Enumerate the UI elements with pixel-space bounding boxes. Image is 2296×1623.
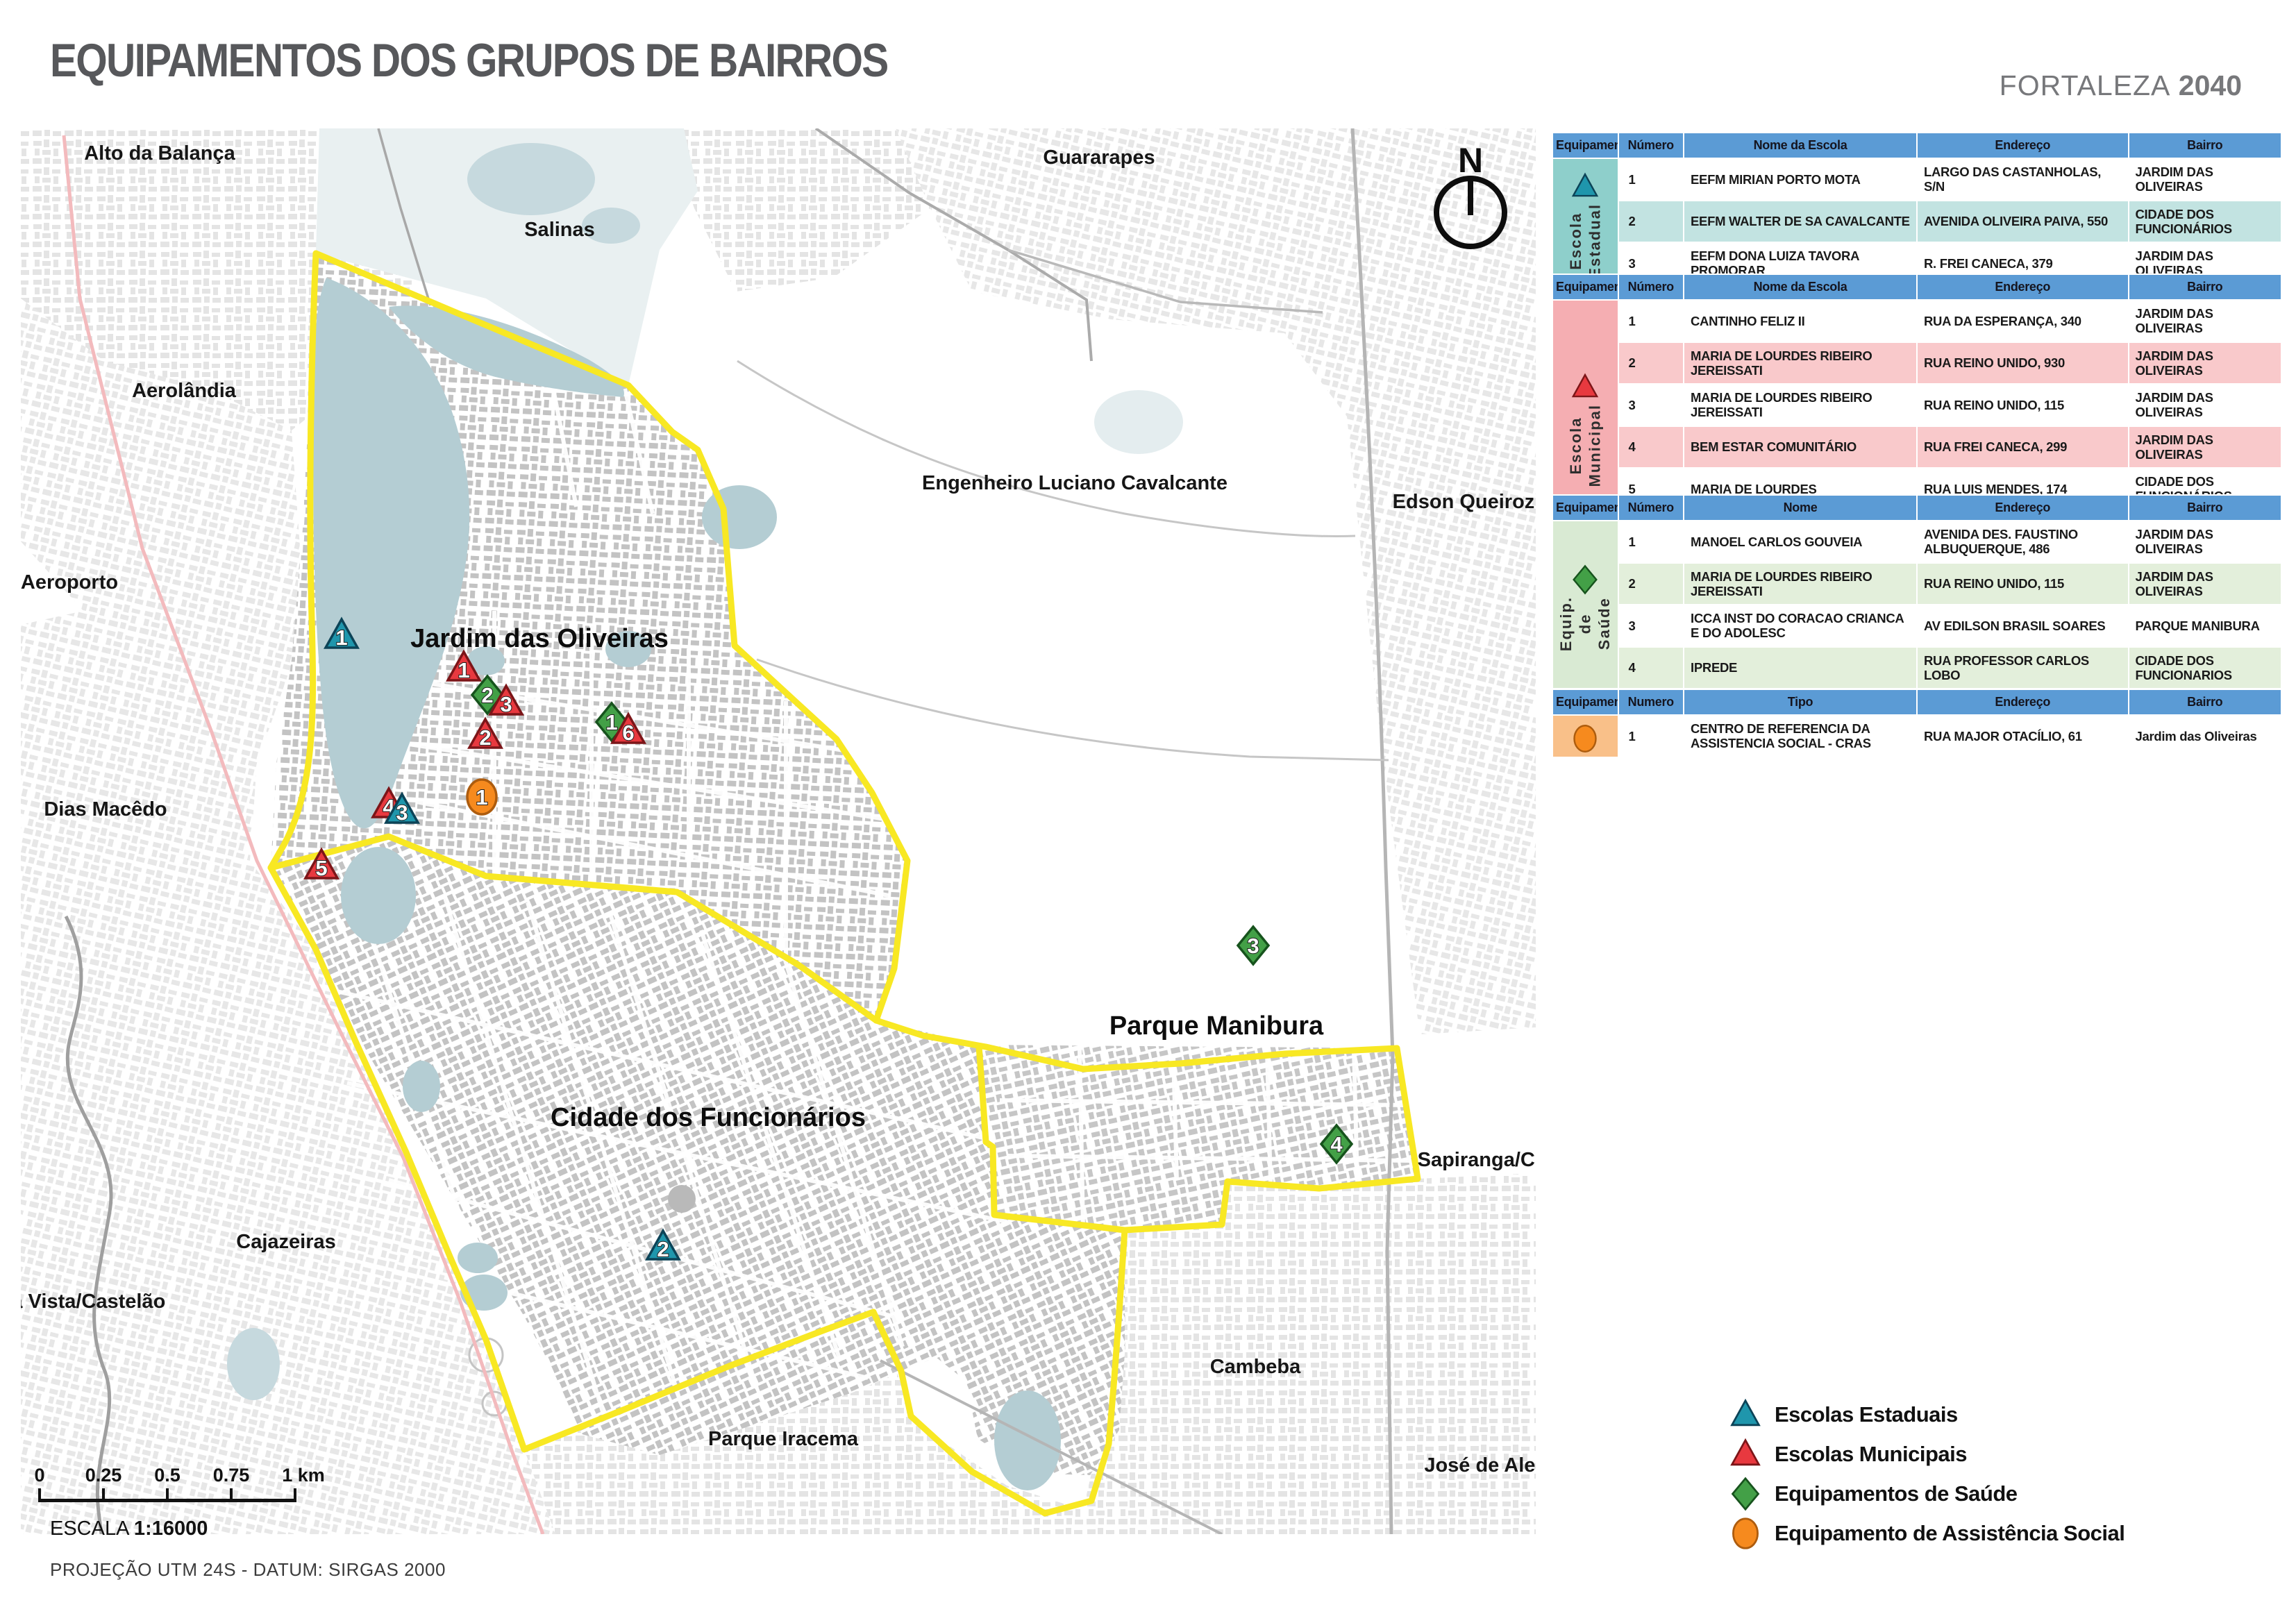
bairro-label: Aeroporto: [21, 571, 118, 594]
cell-nome: BEM ESTAR COMUNITÁRIO: [1684, 426, 1917, 469]
table-saude-grid: EquipamentoNúmeroNomeEndereçoBairroEquip…: [1552, 494, 2282, 689]
bairro-label: Guararapes: [1043, 146, 1155, 169]
cell-endereco: LARGO DAS CASTANHOLAS, S/N: [1917, 158, 2129, 201]
column-header: Endereço: [1917, 274, 2129, 300]
column-header: Numero: [1618, 689, 1684, 715]
cell-numero: 1: [1618, 158, 1684, 201]
cell-numero: 3: [1618, 384, 1684, 426]
cell-nome: MARIA DE LOURDES RIBEIRO JEREISSATI: [1684, 563, 1917, 605]
cell-bairro: Jardim das Oliveiras: [2129, 715, 2282, 757]
scale-bar-labels: 00.250.50.751 km: [38, 1465, 296, 1487]
bairro-label: Cambeba: [1210, 1356, 1301, 1378]
column-header: Endereço: [1917, 689, 2129, 715]
table-row: 1CENTRO DE REFERENCIA DA ASSISTENCIA SOC…: [1552, 715, 2281, 757]
scale-tick-label: 0.25: [85, 1465, 122, 1486]
column-header: Bairro: [2129, 133, 2282, 158]
page-title: EQUIPAMENTOS DOS GRUPOS DE BAIRROS: [50, 33, 888, 87]
table-row: 3ICCA INST DO CORACAO CRIANCA E DO ADOLE…: [1552, 605, 2281, 647]
legend-item-cras: Equipamento de Assistência Social: [1727, 1518, 2125, 1549]
cell-nome: CANTINHO FELIZ II: [1684, 300, 1917, 342]
legend-item-estadual: Escolas Estaduais: [1727, 1399, 2125, 1430]
cell-bairro: JARDIM DAS OLIVEIRAS: [2129, 342, 2282, 385]
group-label: Equip. deSaúde: [1557, 596, 1614, 651]
column-header: Endereço: [1917, 495, 2129, 521]
marker-number: 1: [335, 625, 347, 650]
bairro-label: Parque Iracema: [708, 1428, 859, 1450]
cell-numero: 3: [1618, 605, 1684, 647]
bairro-label: Alto da Balança: [84, 142, 235, 165]
marker-number: 6: [622, 721, 634, 745]
scale-text: ESCALA 1:16000: [50, 1517, 208, 1540]
map-canvas: Alto da BalançaSalinasGuararapesAerolând…: [21, 128, 1536, 1534]
marker-number: 2: [657, 1237, 669, 1261]
brand-year: 2040: [2179, 69, 2242, 101]
cell-bairro: JARDIM DAS OLIVEIRAS: [2129, 563, 2282, 605]
cell-nome: EEFM WALTER DE SA CAVALCANTE: [1684, 201, 1917, 243]
scale-bar: 00.250.50.751 km: [38, 1465, 296, 1508]
bairro-label: Aerolândia: [132, 380, 237, 402]
column-header: Endereço: [1917, 133, 2129, 158]
cell-nome: CENTRO DE REFERENCIA DA ASSISTENCIA SOCI…: [1684, 715, 1917, 757]
table-row: EscolaMunicipal1CANTINHO FELIZ IIRUA DA …: [1552, 300, 2281, 342]
table-row: 2MARIA DE LOURDES RIBEIRO JEREISSATIRUA …: [1552, 563, 2281, 605]
column-header: Tipo: [1684, 689, 1917, 715]
column-header: Número: [1618, 133, 1684, 158]
cell-endereco: RUA REINO UNIDO, 115: [1917, 563, 2129, 605]
legend-label: Equipamento de Assistência Social: [1775, 1521, 2125, 1546]
marker-cras-1: 1: [467, 780, 496, 814]
bairro-label: Edson Queiroz: [1393, 491, 1535, 513]
estadual-symbol-icon: [1570, 171, 1600, 202]
group-cell: EscolaEstadual: [1552, 158, 1618, 285]
cell-numero: 2: [1618, 342, 1684, 385]
municipal-symbol-icon: [1570, 372, 1600, 403]
cell-endereco: RUA REINO UNIDO, 115: [1917, 384, 2129, 426]
column-header: Equipamentos: [1552, 689, 1618, 715]
cell-nome: MANOEL CARLOS GOUVEIA: [1684, 521, 1917, 563]
group-cell: [1552, 715, 1618, 757]
cell-bairro: CIDADE DOS FUNCIONÁRIOS: [2129, 201, 2282, 243]
legend-label: Equipamentos de Saúde: [1775, 1481, 2018, 1506]
cras-symbol-icon: [1728, 1516, 1763, 1551]
marker-number: 3: [500, 692, 512, 716]
column-header: Bairro: [2129, 495, 2282, 521]
cell-numero: 1: [1618, 715, 1684, 757]
column-header: Equipamento: [1552, 274, 1618, 300]
legend: Escolas EstaduaisEscolas MunicipaisEquip…: [1727, 1399, 2125, 1558]
cell-numero: 4: [1618, 647, 1684, 689]
cell-endereco: RUA MAJOR OTACÍLIO, 61: [1917, 715, 2129, 757]
bairro-label: Parque Manibura: [1109, 1011, 1324, 1041]
table-row: 3MARIA DE LOURDES RIBEIRO JEREISSATIRUA …: [1552, 384, 2281, 426]
bairro-label: Boa Vista/Castelão: [21, 1290, 165, 1313]
cell-nome: MARIA DE LOURDES RIBEIRO JEREISSATI: [1684, 342, 1917, 385]
bairro-label: Salinas: [524, 219, 595, 241]
legend-item-saude: Equipamentos de Saúde: [1727, 1479, 2125, 1509]
legend-label: Escolas Estaduais: [1775, 1402, 1958, 1427]
table-row: 4IPREDERUA PROFESSOR CARLOS LOBOCIDADE D…: [1552, 647, 2281, 689]
cell-nome: EEFM MIRIAN PORTO MOTA: [1684, 158, 1917, 201]
saude-symbol-icon: [1570, 564, 1600, 595]
municipal-symbol-icon: [1728, 1437, 1763, 1472]
column-header: Nome da Escola: [1684, 274, 1917, 300]
estadual-symbol-icon: [1728, 1397, 1763, 1432]
bairro-label: Sapiranga/Coité: [1418, 1149, 1536, 1171]
column-header: Nome da Escola: [1684, 133, 1917, 158]
marker-number: 1: [458, 658, 469, 682]
marker-number: 2: [479, 725, 491, 750]
cell-bairro: JARDIM DAS OLIVEIRAS: [2129, 384, 2282, 426]
projection-text: PROJEÇÃO UTM 24S - DATUM: SIRGAS 2000: [50, 1559, 446, 1581]
table-row: Equip. deSaúde1MANOEL CARLOS GOUVEIAAVEN…: [1552, 521, 2281, 563]
brand-name: FORTALEZA: [2000, 69, 2171, 101]
cell-nome: IPREDE: [1684, 647, 1917, 689]
column-header: Bairro: [2129, 689, 2282, 715]
table-row: EscolaEstadual1EEFM MIRIAN PORTO MOTALAR…: [1552, 158, 2281, 201]
cell-numero: 2: [1618, 201, 1684, 243]
scale-tick-label: 0.5: [154, 1465, 181, 1486]
bairro-label: José de Alencar: [1424, 1454, 1536, 1477]
cell-endereco: AVENIDA OLIVEIRA PAIVA, 550: [1917, 201, 2129, 243]
cell-numero: 1: [1618, 521, 1684, 563]
table-row: 4BEM ESTAR COMUNITÁRIORUA FREI CANECA, 2…: [1552, 426, 2281, 469]
cell-numero: 2: [1618, 563, 1684, 605]
bairro-label: Cidade dos Funcionários: [551, 1103, 866, 1132]
bairro-label: Dias Macêdo: [44, 798, 167, 821]
cras-symbol-icon: [1570, 723, 1600, 754]
column-header: Equipamento: [1552, 133, 1618, 158]
column-header: Número: [1618, 274, 1684, 300]
table-saude: EquipamentoNúmeroNomeEndereçoBairroEquip…: [1552, 494, 2282, 689]
cell-nome: MARIA DE LOURDES RIBEIRO JEREISSATI: [1684, 384, 1917, 426]
cell-bairro: JARDIM DAS OLIVEIRAS: [2129, 300, 2282, 342]
column-header: Equipamento: [1552, 495, 1618, 521]
marker-number: 2: [481, 683, 493, 707]
table-row: 2EEFM WALTER DE SA CAVALCANTEAVENIDA OLI…: [1552, 201, 2281, 243]
group-label: EscolaMunicipal: [1566, 404, 1604, 487]
marker-number: 4: [1330, 1132, 1343, 1157]
scale-text-value: 1:16000: [134, 1517, 208, 1540]
cell-numero: 1: [1618, 300, 1684, 342]
bairro-label: Engenheiro Luciano Cavalcante: [922, 472, 1227, 494]
cell-bairro: JARDIM DAS OLIVEIRAS: [2129, 521, 2282, 563]
cell-nome: ICCA INST DO CORACAO CRIANCA E DO ADOLES…: [1684, 605, 1917, 647]
marker-number: 1: [476, 785, 487, 809]
table-estadual-grid: EquipamentoNúmeroNome da EscolaEndereçoB…: [1552, 132, 2282, 285]
marker-number: 3: [1247, 934, 1259, 958]
cell-endereco: RUA FREI CANECA, 299: [1917, 426, 2129, 469]
column-header: Nome: [1684, 495, 1917, 521]
marker-number: 5: [315, 856, 327, 880]
marker-number: 3: [396, 800, 408, 825]
cell-endereco: RUA DA ESPERANÇA, 340: [1917, 300, 2129, 342]
table-row: 2MARIA DE LOURDES RIBEIRO JEREISSATIRUA …: [1552, 342, 2281, 385]
table-cras-grid: EquipamentosNumeroTipoEndereçoBairro1CEN…: [1552, 689, 2282, 758]
table-cras: EquipamentosNumeroTipoEndereçoBairro1CEN…: [1552, 689, 2282, 758]
cell-endereco: AV EDILSON BRASIL SOARES: [1917, 605, 2129, 647]
saude-symbol-icon: [1728, 1477, 1763, 1511]
scale-text-prefix: ESCALA: [50, 1517, 128, 1540]
group-cell: Equip. deSaúde: [1552, 521, 1618, 689]
cell-numero: 4: [1618, 426, 1684, 469]
marker-number: 1: [605, 710, 617, 734]
column-header: Bairro: [2129, 274, 2282, 300]
scale-bar-line: [38, 1487, 296, 1502]
scale-tick-label: 0.75: [213, 1465, 250, 1486]
cell-bairro: JARDIM DAS OLIVEIRAS: [2129, 426, 2282, 469]
group-label: EscolaEstadual: [1566, 203, 1604, 278]
cell-bairro: JARDIM DAS OLIVEIRAS: [2129, 158, 2282, 201]
bairro-label: Cajazeiras: [236, 1231, 336, 1253]
column-header: Número: [1618, 495, 1684, 521]
cell-endereco: RUA REINO UNIDO, 930: [1917, 342, 2129, 385]
bairro-label: Jardim das Oliveiras: [410, 624, 669, 653]
cell-endereco: RUA PROFESSOR CARLOS LOBO: [1917, 647, 2129, 689]
cell-endereco: AVENIDA DES. FAUSTINO ALBUQUERQUE, 486: [1917, 521, 2129, 563]
scale-tick-label: 0: [34, 1465, 44, 1486]
legend-item-municipal: Escolas Municipais: [1727, 1439, 2125, 1470]
legend-label: Escolas Municipais: [1775, 1442, 1967, 1467]
cell-bairro: CIDADE DOS FUNCIONARIOS: [2129, 647, 2282, 689]
north-label: N: [1458, 141, 1483, 180]
table-estadual: EquipamentoNúmeroNome da EscolaEndereçoB…: [1552, 132, 2282, 285]
scale-tick-label: 1 km: [282, 1465, 325, 1486]
brand: FORTALEZA 2040: [2000, 69, 2242, 102]
cell-bairro: PARQUE MANIBURA: [2129, 605, 2282, 647]
